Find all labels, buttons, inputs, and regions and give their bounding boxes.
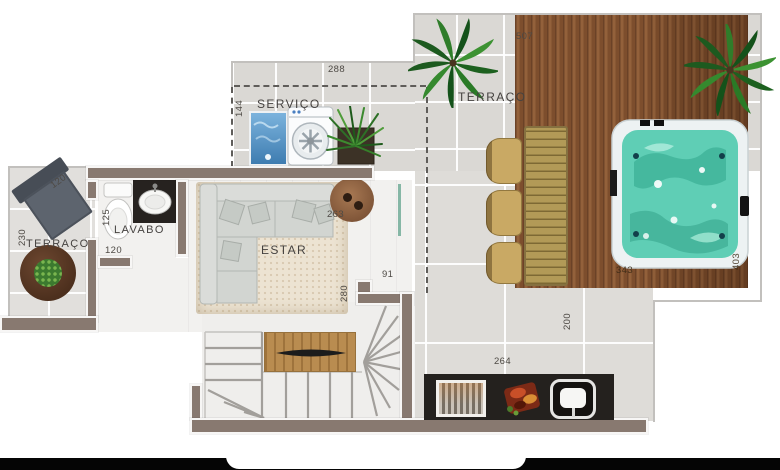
wall-stair-right <box>400 292 414 424</box>
dimension-label: 288 <box>328 64 345 75</box>
room-label-servico: SERVIÇO <box>257 97 321 111</box>
bbq-sink-icon <box>550 379 596 419</box>
wall-stair-left <box>190 384 202 420</box>
laundry-tank-icon <box>249 111 288 166</box>
wall-bottom <box>190 418 648 434</box>
round-planter-icon <box>20 245 76 301</box>
food-platter-icon <box>498 379 546 419</box>
tv-stand-icon <box>264 332 356 372</box>
dimension-label: 263 <box>327 209 344 220</box>
hall-floor <box>98 258 188 332</box>
glass-door <box>398 184 401 236</box>
dashed-line-servico-left <box>231 87 233 167</box>
dimension-label: 264 <box>494 356 511 367</box>
plant-icon <box>34 259 62 287</box>
dashed-line-covered-area <box>426 87 428 293</box>
dimension-label: 230 <box>8 232 38 243</box>
sink-counter-icon <box>133 179 177 223</box>
chair-icon <box>486 242 522 284</box>
boundary-line-deck-bottom <box>653 300 762 302</box>
room-label-lavabo: LAVABO <box>114 224 165 236</box>
wall-top <box>86 166 374 180</box>
room-label-estar: ESTAR <box>261 243 307 257</box>
wall-lavabo-bottom <box>98 256 132 268</box>
potted-plant-icon <box>326 106 384 168</box>
dimension-label: 507 <box>516 31 533 42</box>
dimension-label: 280 <box>330 288 360 299</box>
dimension-label: 343 <box>616 265 633 276</box>
dimension-label: 91 <box>382 269 393 280</box>
dimension-label: 200 <box>553 316 583 327</box>
hot-tub-icon <box>610 118 750 270</box>
boundary-line-step-h <box>232 61 415 63</box>
boundary-line-servico-left <box>231 61 233 89</box>
dining-table-icon <box>524 126 568 286</box>
dimension-label: 144 <box>225 103 255 114</box>
bottom-bar-logo-blob <box>226 442 526 469</box>
boundary-line-lower-right <box>653 300 655 422</box>
dimension-label: 125 <box>92 212 122 223</box>
room-label-terraco-top: TERRAÇO <box>458 90 526 104</box>
palm-tree-icon <box>684 24 776 116</box>
wall-left-terrace-bottom <box>0 316 98 332</box>
wall-lavabo-right <box>176 180 188 256</box>
wall-left-lower <box>86 238 98 322</box>
grill-icon <box>436 380 486 417</box>
chair-icon <box>486 138 522 184</box>
chair-icon <box>486 190 522 236</box>
dimension-label: 120 <box>105 245 122 256</box>
floor-plan-canvas: TERRAÇO SERVIÇO TERRAÇO LAVABO ESTAR 288… <box>0 0 780 470</box>
dashed-line-servico-top <box>234 85 426 87</box>
dimension-label: 403 <box>722 256 752 267</box>
